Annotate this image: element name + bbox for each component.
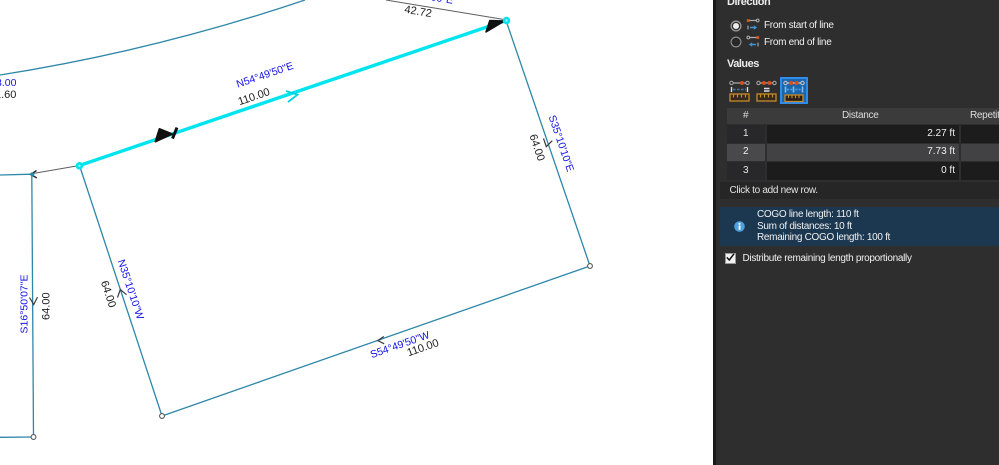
svg-text:N35°10'10"W: N35°10'10"W xyxy=(115,258,146,321)
svg-text:42.72: 42.72 xyxy=(404,4,433,20)
svg-text:64.00: 64.00 xyxy=(98,279,118,309)
svg-text:N54°49'50"E: N54°49'50"E xyxy=(235,60,295,91)
svg-text:1.60: 1.60 xyxy=(0,89,16,101)
svg-text:3.00: 3.00 xyxy=(0,77,17,89)
svg-text:64.00: 64.00 xyxy=(41,292,53,320)
svg-text:S16°50'07"E: S16°50'07"E xyxy=(19,275,31,334)
svg-text:64.00: 64.00 xyxy=(527,133,547,163)
